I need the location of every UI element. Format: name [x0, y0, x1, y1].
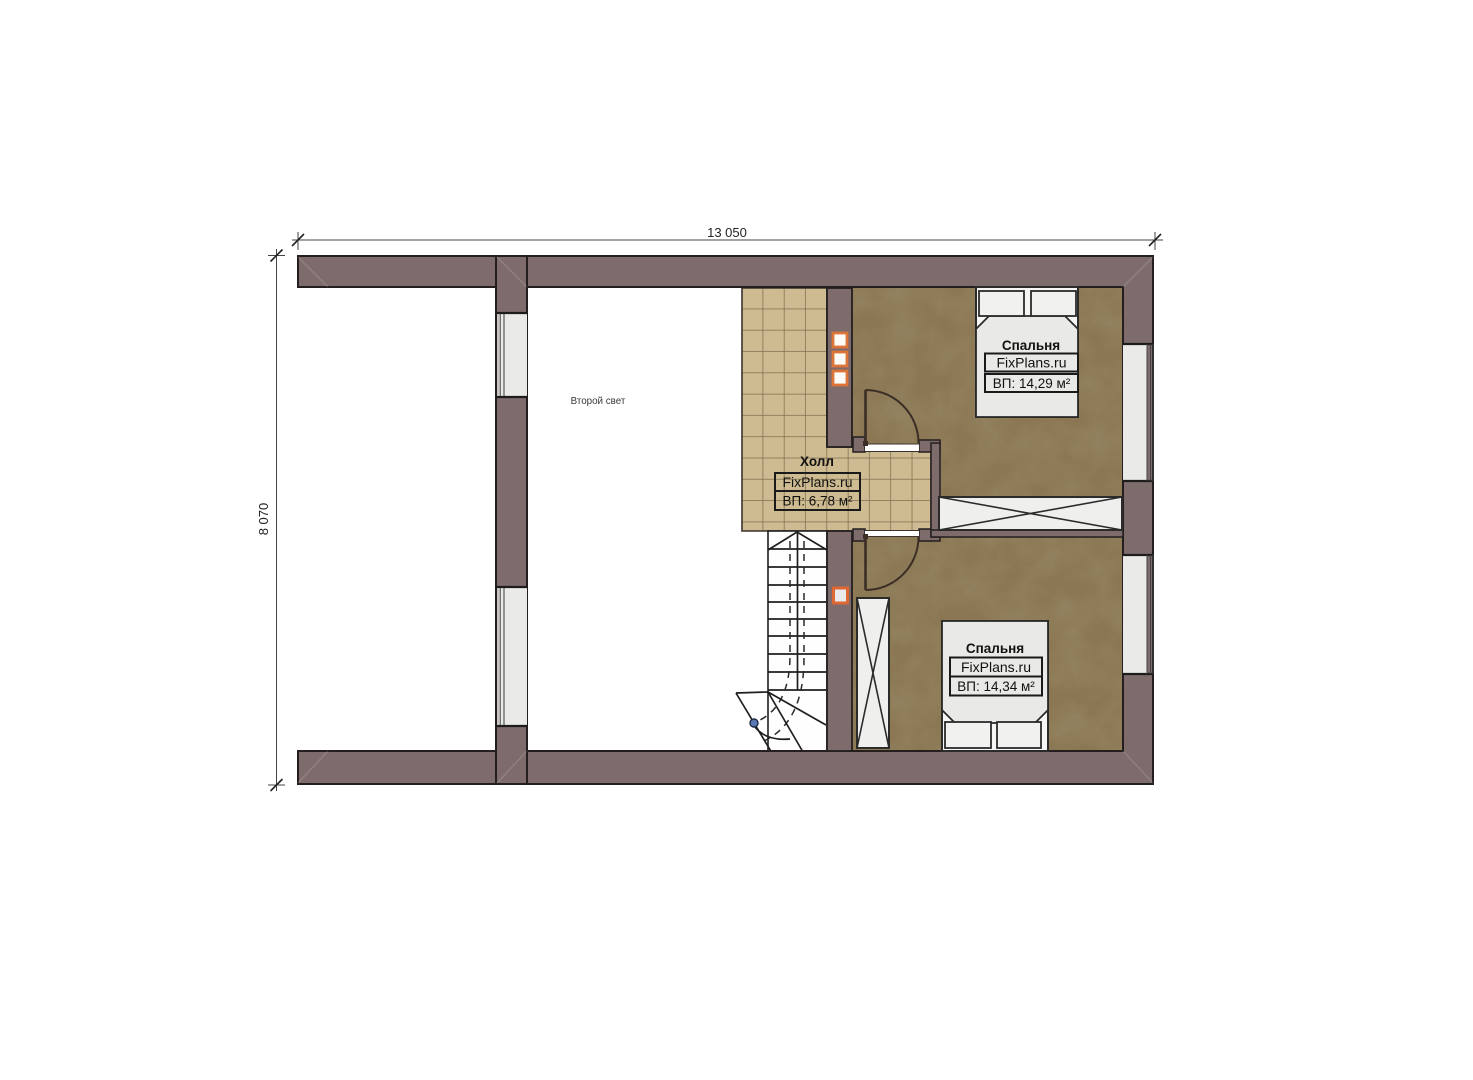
svg-text:Спальня: Спальня	[966, 641, 1024, 656]
svg-text:13 050: 13 050	[707, 225, 747, 240]
svg-text:8 070: 8 070	[256, 503, 271, 536]
svg-text:FixPlans.ru: FixPlans.ru	[961, 659, 1031, 675]
svg-text:ВП: 6,78 м²: ВП: 6,78 м²	[782, 494, 853, 509]
svg-text:Второй свет: Второй свет	[571, 396, 626, 407]
svg-text:ВП: 14,34 м²: ВП: 14,34 м²	[957, 679, 1035, 694]
svg-text:FixPlans.ru: FixPlans.ru	[996, 355, 1066, 371]
svg-text:FixPlans.ru: FixPlans.ru	[782, 474, 852, 490]
svg-text:ВП: 14,29 м²: ВП: 14,29 м²	[993, 376, 1071, 391]
svg-text:Холл: Холл	[800, 454, 834, 469]
svg-text:Спальня: Спальня	[1002, 338, 1060, 353]
